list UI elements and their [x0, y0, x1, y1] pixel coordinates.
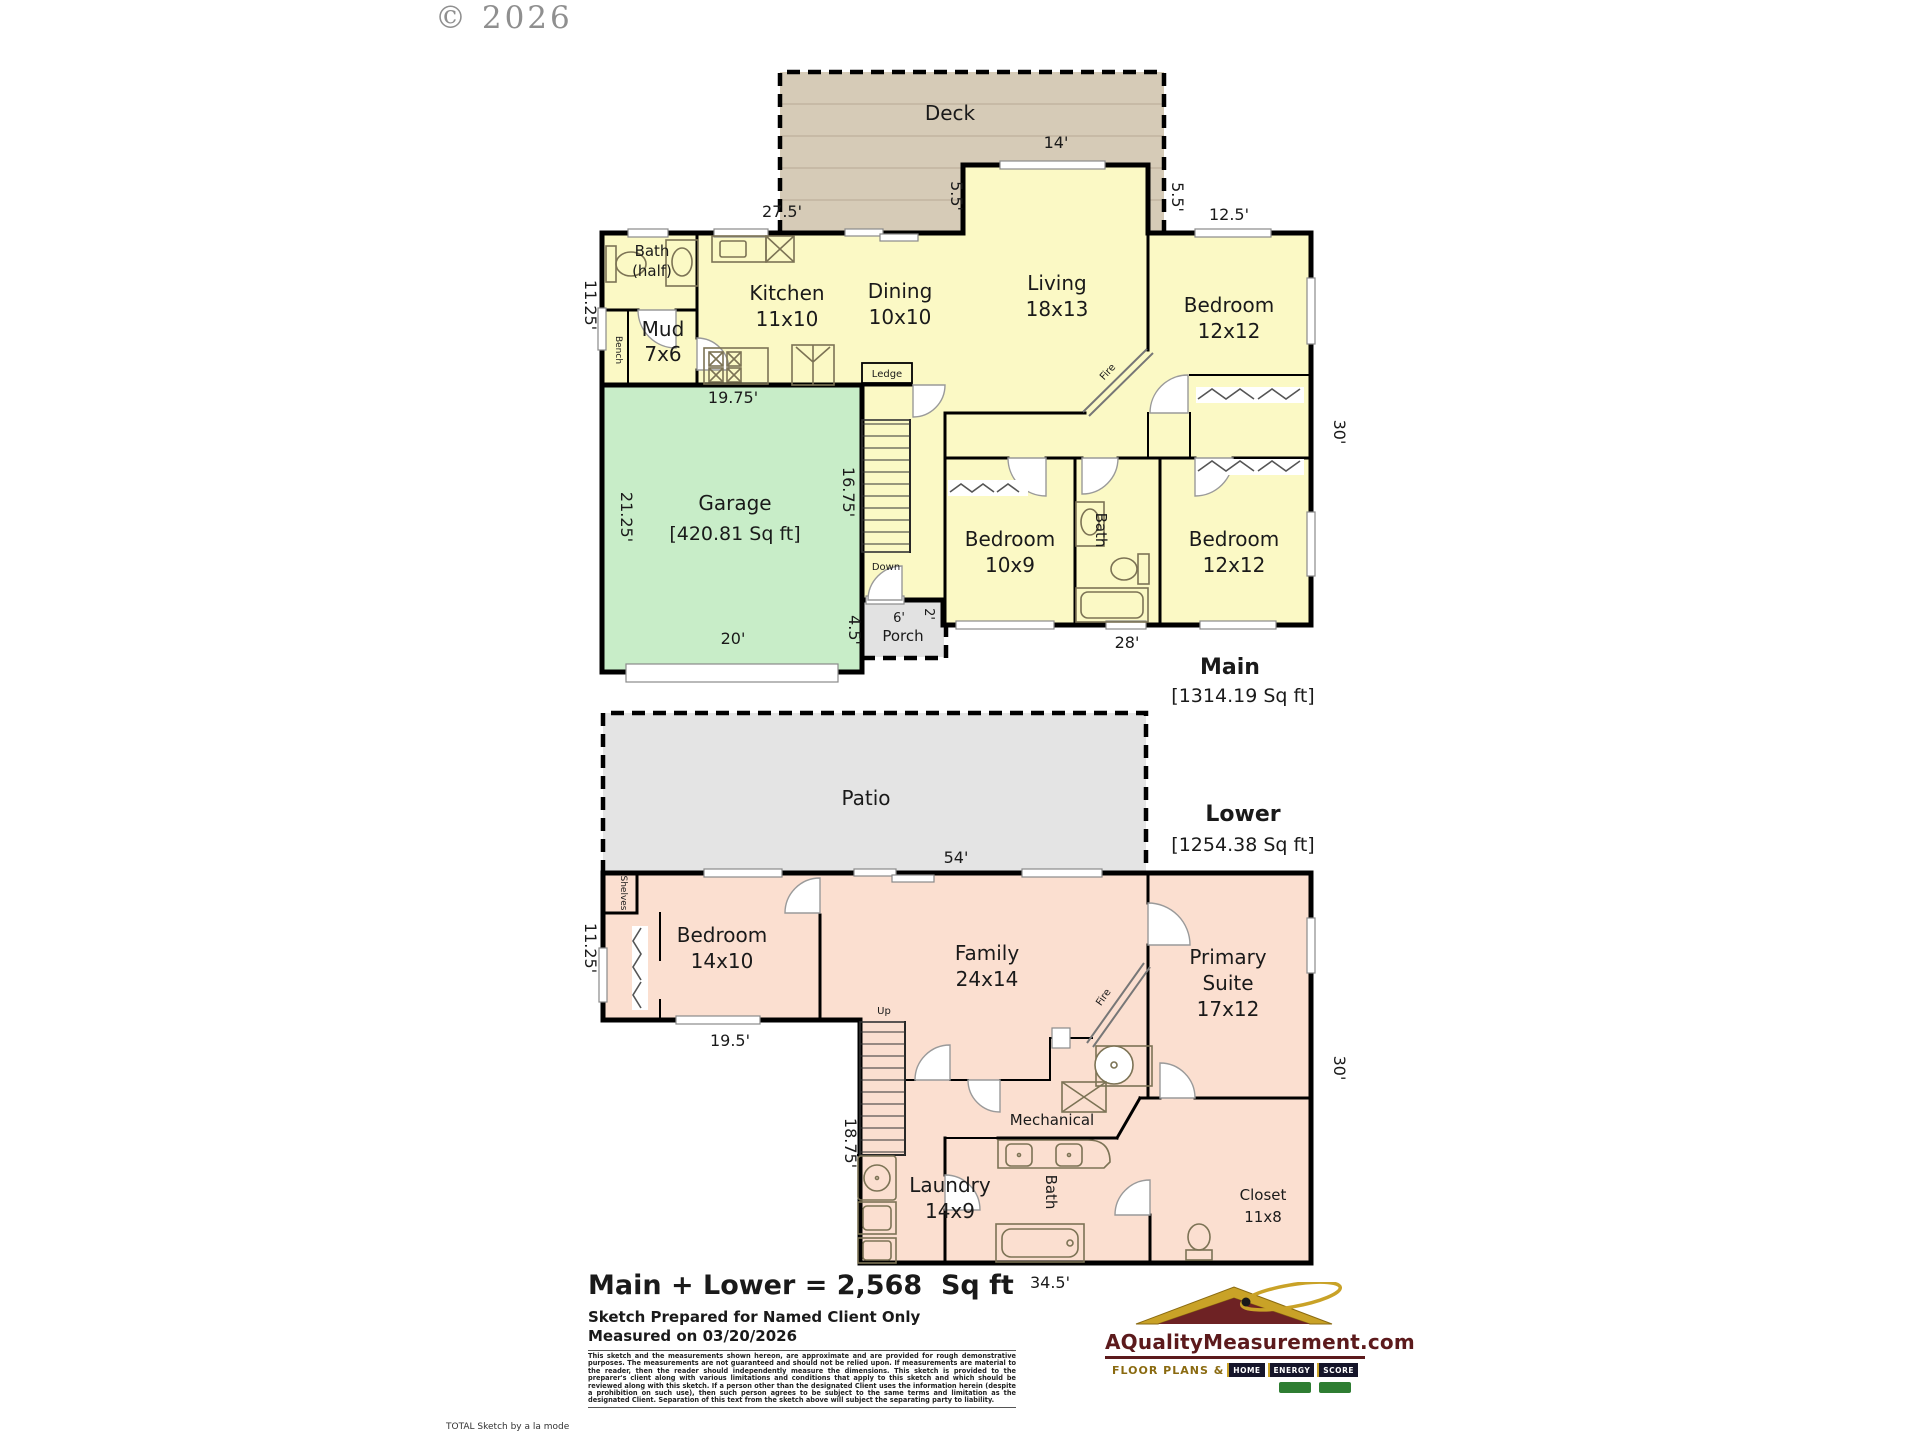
- mud-size: 7x6: [644, 342, 681, 366]
- dim-bedroom-ne-top: 12.5': [1209, 205, 1249, 224]
- dim-main-right: 30': [1330, 420, 1349, 445]
- dim-living-left: 5.5': [947, 181, 966, 211]
- dim-main-left: 11.25': [581, 280, 600, 330]
- dim-lower-right: 30': [1330, 1056, 1349, 1081]
- bedroom-se-label: Bedroom: [1189, 527, 1279, 551]
- porch-label: Porch: [882, 627, 923, 645]
- dim-patio-width: 54': [944, 848, 969, 867]
- half-bath-label2: (half): [632, 262, 672, 280]
- primary-suite-label1: Primary: [1189, 945, 1266, 969]
- floor-plan-sketch: © 2026: [0, 0, 1920, 1440]
- dim-porch-depth: 2': [921, 608, 936, 620]
- dim-lower-left-upper: 11.25': [581, 923, 600, 973]
- badge-score: SCORE: [1317, 1363, 1358, 1377]
- total-area-text: Main + Lower = 2,568 Sq ft: [588, 1270, 1014, 1301]
- main-bath-label: Bath: [1092, 513, 1110, 548]
- logo-tagline: FLOOR PLANS &: [1112, 1364, 1224, 1377]
- bedroom-mid-label: Bedroom: [965, 527, 1055, 551]
- bedroom-ne-label: Bedroom: [1184, 293, 1274, 317]
- dining-label: Dining: [868, 279, 933, 303]
- closet-rod-lower: [632, 926, 648, 1010]
- measured-date-text: Measured on 03/20/2026: [588, 1327, 797, 1345]
- bedroom-ne-size: 12x12: [1198, 319, 1261, 343]
- disclaimer-text: This sketch and the measurements shown h…: [588, 1350, 1016, 1408]
- primary-suite-label2: Suite: [1202, 971, 1253, 995]
- down-label: Down: [872, 562, 900, 573]
- ledge-label: Ledge: [872, 369, 902, 380]
- dim-garage-porch: 4.5': [845, 615, 864, 645]
- dim-main-bottom: 28': [1115, 633, 1140, 652]
- main-sqft: [1314.19 Sq ft]: [1171, 685, 1314, 707]
- dim-lower-bottom: 34.5': [1030, 1273, 1070, 1292]
- company-logo: AQualityMeasurement.com FLOOR PLANS & HO…: [1105, 1282, 1365, 1393]
- dim-stairwell: 16.75': [839, 467, 858, 517]
- family-label: Family: [955, 941, 1020, 965]
- floor-plan-drawing: Deck Bath (half) Mud 7x6 Kitchen 11x10 D…: [0, 0, 1920, 1440]
- main-title: Main: [1200, 655, 1260, 680]
- bench-label: Bench: [613, 336, 623, 364]
- garage-sqft: [420.81 Sq ft]: [669, 523, 800, 545]
- dim-garage-bottom: 20': [721, 629, 746, 648]
- closet-label: Closet: [1240, 1186, 1287, 1204]
- roof-logo-icon: [1106, 1282, 1364, 1326]
- dim-porch-width: 6': [893, 611, 905, 626]
- living-label: Living: [1027, 271, 1086, 295]
- laundry-size: 14x9: [925, 1199, 975, 1223]
- dining-size: 10x10: [869, 305, 932, 329]
- lower-bedroom-label: Bedroom: [677, 923, 767, 947]
- bedroom-se-size: 12x12: [1203, 553, 1266, 577]
- deck-label: Deck: [925, 101, 976, 125]
- closet-size: 11x8: [1244, 1208, 1282, 1226]
- score-chip-right: [1319, 1382, 1351, 1393]
- dim-living-right: 5.5': [1168, 182, 1187, 212]
- kitchen-label: Kitchen: [749, 281, 824, 305]
- garage-label: Garage: [698, 491, 771, 515]
- dim-lower-left-lower: 18.75': [841, 1118, 860, 1168]
- score-chip-left: [1279, 1382, 1311, 1393]
- lower-title: Lower: [1205, 802, 1280, 827]
- lower-bath-label: Bath: [1042, 1175, 1060, 1210]
- dim-garage-left: 21.25': [617, 492, 636, 542]
- up-label: Up: [877, 1006, 891, 1017]
- dim-lower-bedroom-bottom: 19.5': [710, 1031, 750, 1050]
- living-size: 18x13: [1026, 297, 1089, 321]
- badge-home: HOME: [1227, 1363, 1264, 1377]
- lower-floor-plan: Patio Bedroom 14x10 Family 24x14 Primary…: [581, 713, 1349, 1292]
- prepared-for-text: Sketch Prepared for Named Client Only: [588, 1308, 920, 1326]
- dim-living-top: 14': [1044, 133, 1069, 152]
- mud-label: Mud: [642, 317, 685, 341]
- badge-energy: ENERGY: [1268, 1363, 1315, 1377]
- software-credit: TOTAL Sketch by a la mode: [446, 1422, 569, 1432]
- half-bath-label: Bath: [635, 242, 670, 260]
- logo-site-text: AQualityMeasurement.com: [1105, 1330, 1365, 1359]
- dim-garage-top: 19.75': [708, 388, 758, 407]
- kitchen-size: 11x10: [756, 307, 819, 331]
- family-size: 24x14: [956, 967, 1019, 991]
- patio-label: Patio: [841, 786, 890, 810]
- primary-suite-size: 17x12: [1197, 997, 1260, 1021]
- bedroom-mid-size: 10x9: [985, 553, 1035, 577]
- laundry-label: Laundry: [909, 1173, 991, 1197]
- garage-door: [626, 664, 838, 682]
- dim-main-top: 27.5': [762, 202, 802, 221]
- lower-sqft: [1254.38 Sq ft]: [1171, 834, 1314, 856]
- main-floor-plan: Deck Bath (half) Mud 7x6 Kitchen 11x10 D…: [581, 72, 1349, 707]
- shelves-label: Shelves: [618, 875, 628, 910]
- lower-bedroom-size: 14x10: [691, 949, 754, 973]
- mechanical-label: Mechanical: [1010, 1111, 1094, 1129]
